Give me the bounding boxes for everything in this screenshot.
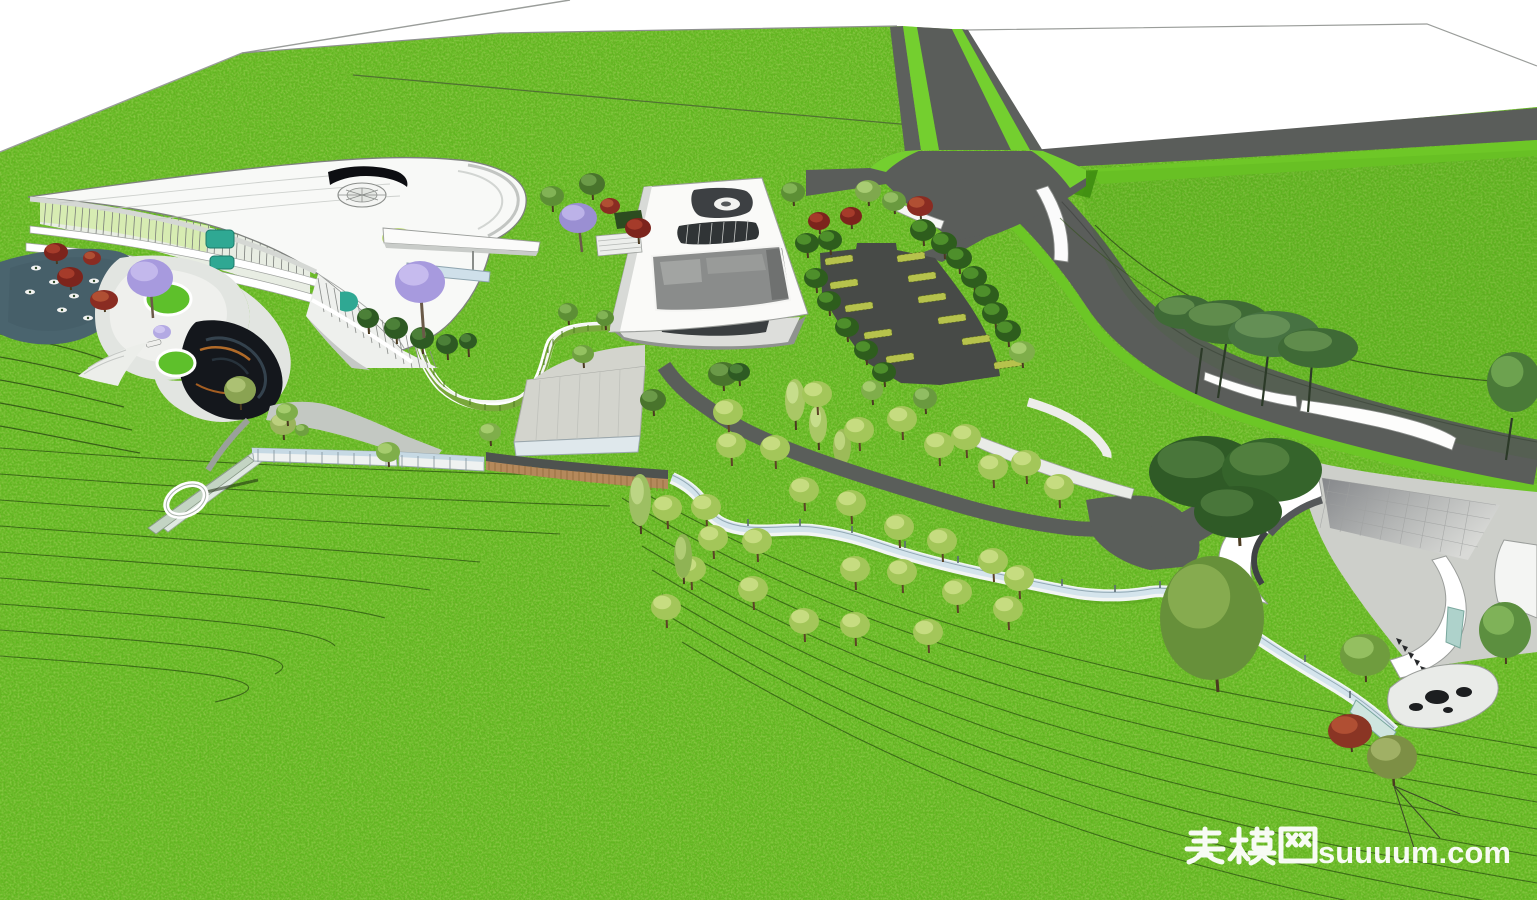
svg-text:suuuum.com: suuuum.com: [1318, 835, 1511, 870]
